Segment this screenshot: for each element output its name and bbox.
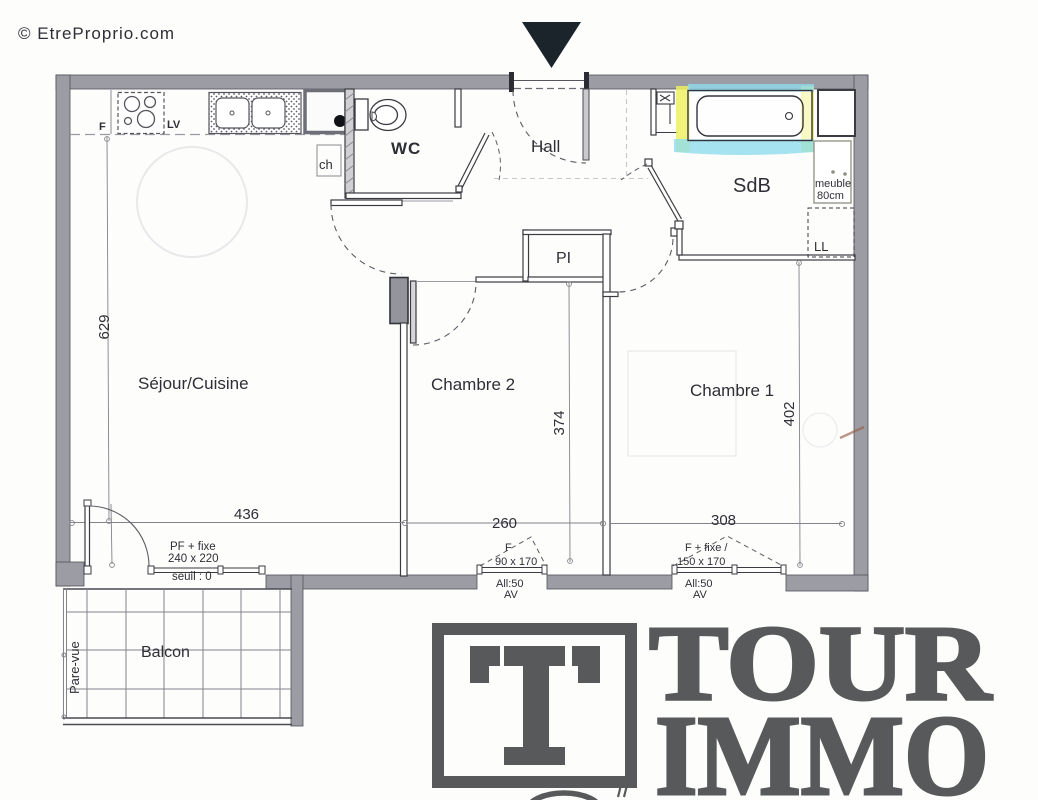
svg-text:F + fixe /: F + fixe /	[685, 542, 728, 554]
svg-text:260: 260	[492, 515, 517, 532]
svg-text:374: 374	[551, 410, 568, 435]
svg-text:AV: AV	[504, 589, 519, 601]
svg-text:IMMO: IMMO	[655, 692, 989, 800]
svg-text:80cm: 80cm	[817, 190, 844, 202]
svg-text:AV: AV	[693, 589, 708, 601]
svg-text:Chambre 2: Chambre 2	[431, 375, 515, 394]
svg-text:240 x 220: 240 x 220	[168, 553, 219, 565]
svg-text:436: 436	[234, 506, 259, 523]
svg-text:F: F	[505, 542, 512, 554]
svg-text:LL: LL	[814, 239, 828, 254]
svg-text:Chambre 1: Chambre 1	[690, 381, 774, 400]
svg-text:308: 308	[711, 512, 736, 529]
svg-text:PI: PI	[556, 250, 571, 267]
svg-text:WC: WC	[391, 139, 421, 158]
svg-text:LV: LV	[167, 119, 181, 131]
svg-text:seuil : 0: seuil : 0	[172, 571, 212, 583]
svg-text:150 x 170: 150 x 170	[677, 556, 725, 568]
svg-text:Balcon: Balcon	[141, 644, 190, 661]
svg-text:PF + fixe: PF + fixe	[170, 541, 216, 553]
svg-text:402: 402	[781, 401, 798, 426]
svg-text:Séjour/Cuisine: Séjour/Cuisine	[138, 374, 249, 393]
svg-text:meuble: meuble	[815, 178, 851, 190]
svg-text:SdB: SdB	[733, 175, 771, 197]
svg-text:© EtreProprio.com: © EtreProprio.com	[18, 24, 175, 43]
svg-text:629: 629	[96, 314, 113, 339]
svg-text:Pare-vue: Pare-vue	[67, 641, 82, 694]
svg-text:Hall: Hall	[531, 137, 560, 156]
svg-text:90 x 170: 90 x 170	[495, 556, 537, 568]
svg-text:F: F	[99, 121, 106, 133]
svg-text:ch: ch	[319, 157, 333, 172]
